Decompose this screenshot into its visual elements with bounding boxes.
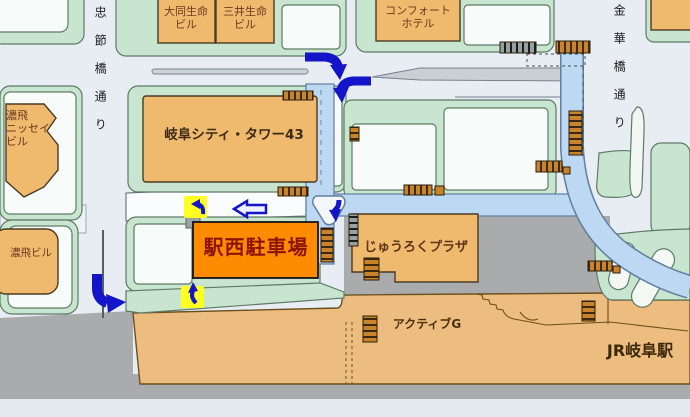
crosswalk-4: [278, 187, 308, 196]
crosswalk-2: [569, 111, 582, 155]
block-east-upper: [651, 143, 690, 235]
stairs-plaza-west: [364, 258, 379, 280]
crosswalk-6: [536, 161, 562, 172]
crosswalk-5: [404, 185, 432, 195]
building-daido-seimei: [158, 0, 215, 43]
crosswalk-3: [283, 91, 313, 100]
crosswalk-7: [588, 261, 612, 271]
access-road-horizontal: [306, 194, 586, 216]
crosswalk-6b: [563, 167, 570, 174]
stairs-station: [582, 301, 595, 321]
crosswalk-8: [350, 127, 359, 141]
crosswalk-dark-1: [500, 42, 536, 53]
crosswalk-5b: [435, 186, 444, 195]
building-mitsui-seimei: [216, 0, 274, 43]
stairs-dark-plaza: [349, 214, 358, 246]
stairs-parking-east: [321, 228, 333, 262]
building-nohhi: [0, 229, 58, 294]
crosswalk-7b: [613, 266, 620, 273]
map-graphics: [0, 0, 690, 417]
building-comfort-hotel: [376, 0, 460, 41]
crosswalk-1: [556, 41, 590, 53]
building-corner-northeast: [651, 0, 690, 30]
stairs-active-g: [363, 316, 377, 342]
parking-highlight-box: [193, 222, 318, 278]
road-divider-island: [630, 107, 644, 197]
station-area-map: 忠節橋通り 金華橋通り 大同生命 ビル 三井生命 ビル コンフォート ホテル 濃…: [0, 0, 690, 417]
building-gifu-city-tower: [143, 96, 317, 182]
